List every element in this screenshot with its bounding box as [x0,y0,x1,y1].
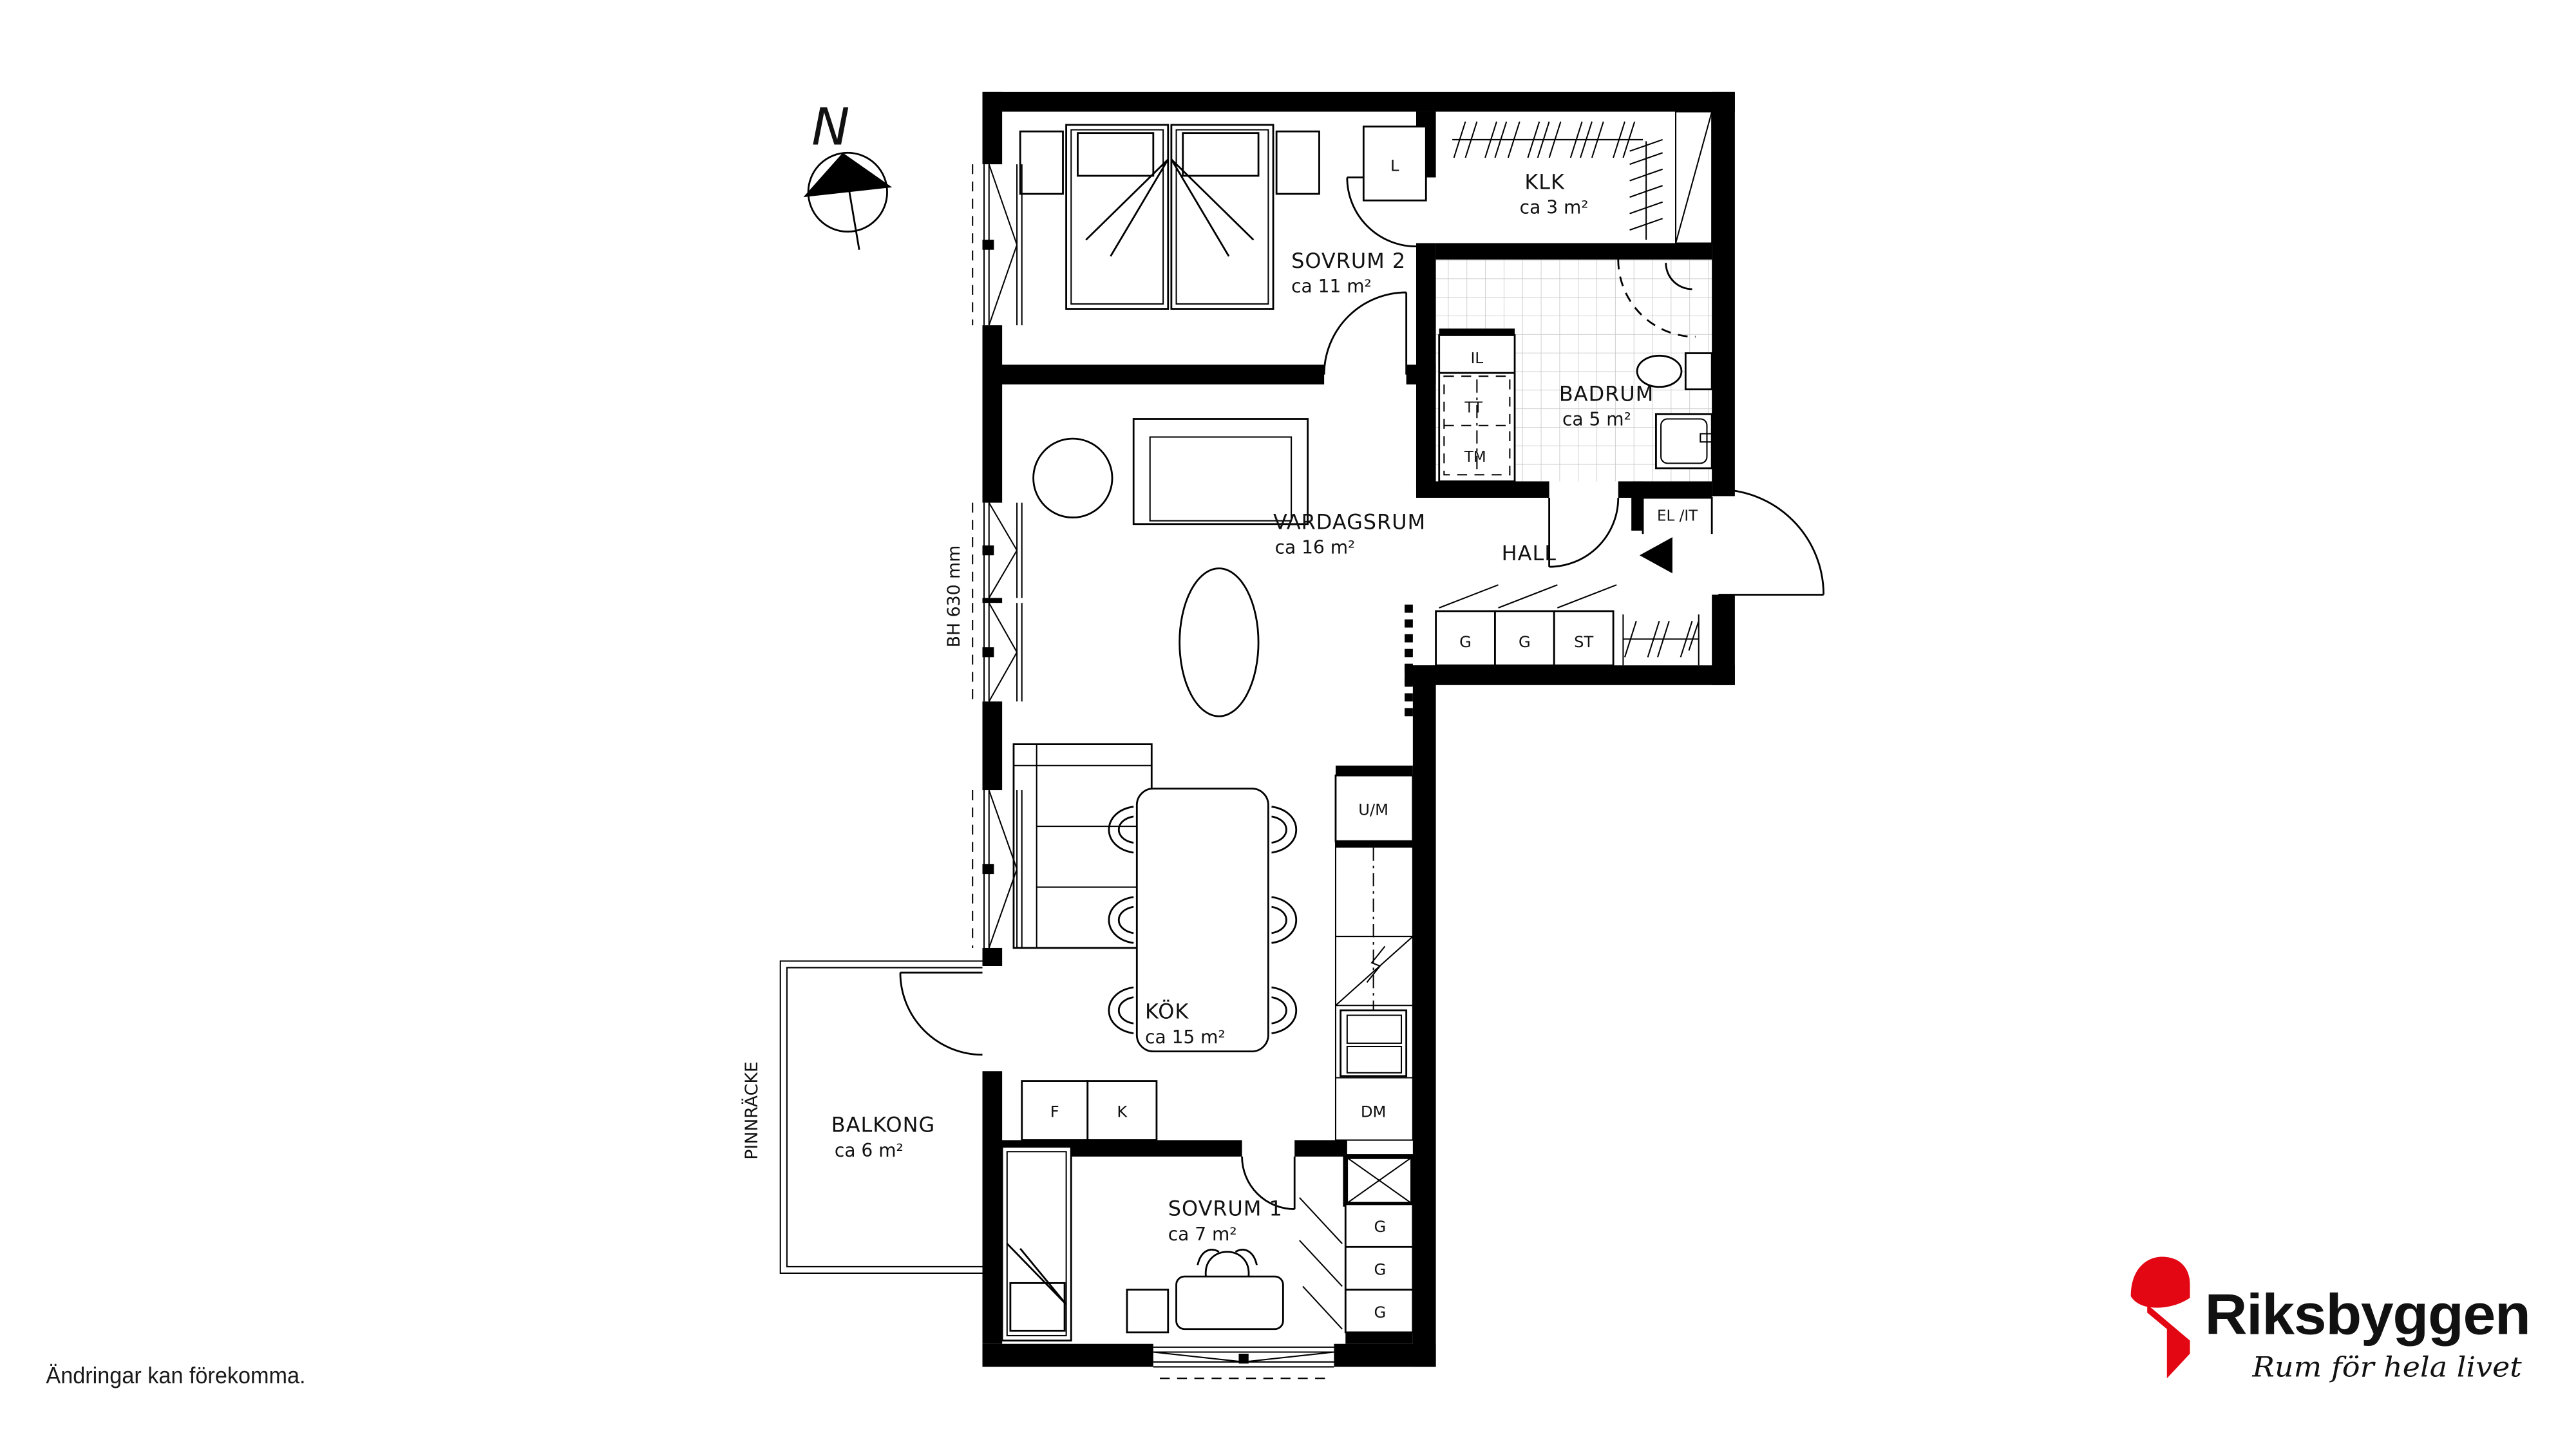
north-label: N [811,97,849,156]
dishwasher-label: DM [1361,1103,1387,1121]
bedside-table [1127,1290,1168,1332]
kitchen: U/M DM F K [900,766,1413,1141]
room-label-balkong: BALKONG ca 6 m² [831,1113,935,1161]
hall-wardrobe-2-label: G [1519,633,1531,651]
laundry-column: IL TT TM [1439,328,1515,481]
bedroom1-wardrobes: G G G [1300,1198,1413,1332]
bedroom2-door [1324,292,1406,375]
dining-table-group [1109,788,1296,1051]
nightstand-right [1276,131,1319,194]
room-name: VARDAGSRUM [1273,509,1426,534]
room-label-klk: KLK ca 3 m² [1520,169,1589,218]
coffee-table [1180,569,1258,717]
bedroom1-bed [1002,1147,1071,1341]
room-name: SOVRUM 2 [1291,249,1406,273]
shaft-box [1345,1157,1413,1204]
hall: G G ST [1409,489,1824,723]
fridge-label: K [1117,1103,1128,1121]
room-label-sovrum2: SOVRUM 2 ca 11 m² [1291,249,1406,297]
room-area: ca 3 m² [1520,197,1589,218]
room-area: ca 15 m² [1145,1027,1226,1048]
el-it-cabinet: EL /IT [1643,498,1712,534]
riksbyggen-logo: Riksbyggen Rum för hela livet [2131,1257,2530,1384]
window-height-label: BH 630 mm [944,545,964,648]
balcony-door [900,972,983,1055]
north-arrow-icon: N [803,97,892,249]
entrance-arrow-icon [1640,537,1672,573]
sideboard [1133,419,1307,524]
logo-brand-text: Riksbyggen [2204,1282,2530,1346]
sink-icon [1341,1010,1406,1076]
logo-tagline-text: Rum för hela livet [2251,1352,2522,1384]
window-bottom-wall [1153,1347,1334,1378]
room-label-sovrum1: SOVRUM 1 ca 7 m² [1168,1197,1283,1245]
room-area: ca 6 m² [835,1140,904,1161]
dryer-label: TT [1464,399,1483,416]
room-name: SOVRUM 1 [1168,1197,1283,1221]
room-name: KÖK [1145,999,1189,1024]
kitchen-counter: U/M DM [1336,766,1413,1141]
logo-mark-icon [2131,1257,2190,1379]
room-area: ca 16 m² [1275,537,1356,558]
room-label-vardagsrum: VARDAGSRUM ca 16 m² [1273,509,1426,558]
room-area: ca 11 m² [1291,276,1372,297]
wardrobe2-label: G [1374,1261,1386,1279]
el-it-label: EL /IT [1657,508,1698,525]
wardrobe3-label: G [1374,1303,1386,1321]
desk-chair [1198,1250,1257,1277]
room-name: BADRUM [1559,381,1654,406]
desk [1177,1276,1283,1329]
nightstand-left [1020,131,1063,194]
hall-hanging-rail [1623,614,1698,665]
washer-label: TM [1464,449,1486,466]
round-table [1034,439,1112,517]
wardrobe-door-indicators [1300,1198,1342,1329]
room-label-hall: HALL [1502,541,1557,565]
disclaimer-text: Ändringar kan förekomma. [46,1363,305,1388]
shaft-diagonal [1676,111,1712,243]
washbasin-icon [1656,414,1712,468]
stove-icon [1336,936,1413,1005]
room-name: BALKONG [831,1113,935,1137]
laundry-shelf-label: IL [1471,350,1484,367]
room-area: ca 5 m² [1562,409,1631,430]
hall-wardrobe-1-label: G [1459,633,1472,651]
closet-door-indicators [1439,585,1617,608]
linen-cabinet-label: L [1390,156,1399,175]
floorplan-canvas: N [0,0,2576,1449]
room-area: ca 7 m² [1168,1224,1237,1245]
freezer-label: F [1050,1103,1059,1121]
wardrobe1-label: G [1374,1218,1386,1236]
bathroom-door [1549,498,1618,567]
oven-micro-label: U/M [1358,800,1388,819]
hall-cleaning-closet-label: ST [1574,633,1593,651]
railing-label: PINNRÄCKE [741,1061,762,1160]
entrance-door [1718,489,1823,594]
room-name: KLK [1524,169,1565,194]
